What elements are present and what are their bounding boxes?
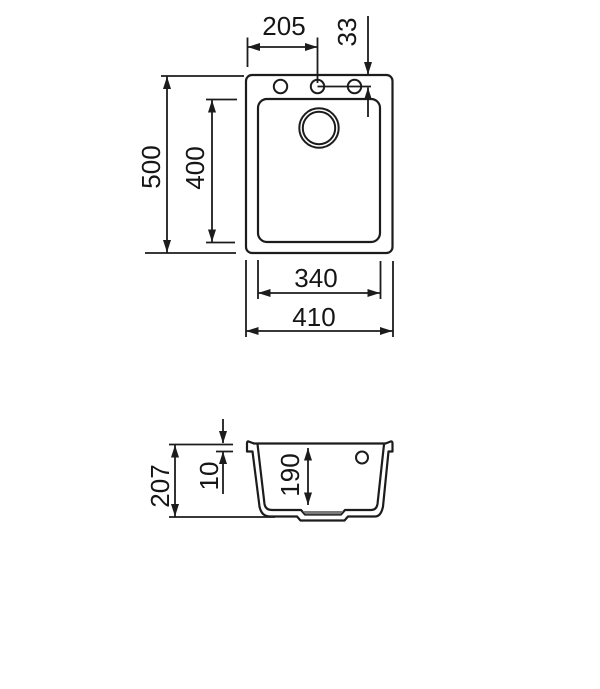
dim-label-tap-hole-edge: 33 [334, 18, 360, 47]
dim-label-overall-depth: 500 [138, 145, 164, 188]
dim-190 [304, 448, 312, 505]
drawing-linework [0, 0, 600, 689]
tap-hole-left [274, 80, 287, 93]
dim-label-overall-height: 207 [147, 464, 173, 507]
dim-label-bowl-width: 340 [294, 265, 337, 291]
arrowhead-down [163, 240, 171, 253]
arrowhead-down [304, 493, 312, 506]
arrowhead-up [171, 445, 179, 458]
arrowhead-down [208, 230, 216, 243]
arrowhead-down [364, 62, 372, 75]
arrowhead-right [368, 289, 381, 297]
sink-outer-outline [246, 75, 393, 253]
drain-outline-inner [303, 112, 335, 144]
dim-400 [206, 100, 237, 243]
arrowhead-right [305, 43, 318, 51]
arrowhead-up [208, 100, 216, 113]
sink-technical-drawing: 205 33 500 400 340 410 207 10 190 [0, 0, 600, 689]
drain-recess-fill [303, 511, 344, 514]
arrowhead-left [246, 327, 259, 335]
arrowhead-left [248, 43, 261, 51]
dim-label-tap-hole-offset: 205 [262, 13, 305, 39]
arrowhead-left [258, 289, 271, 297]
dim-33 [364, 16, 372, 117]
dim-label-rim-thickness: 10 [196, 462, 222, 491]
overflow-hole [356, 452, 368, 464]
arrowhead-right [380, 327, 393, 335]
arrowhead-up [364, 88, 372, 101]
dim-label-overall-width: 410 [292, 304, 335, 330]
arrowhead-up [304, 448, 312, 461]
sink-bowl-outline [258, 99, 380, 242]
dim-label-bowl-depth: 400 [182, 146, 208, 189]
dim-205 [248, 38, 318, 84]
drain-outline-outer [299, 108, 338, 147]
arrowhead-up [163, 77, 171, 90]
dim-label-bowl-inner-depth: 190 [277, 453, 303, 496]
arrowhead-down [219, 431, 227, 444]
